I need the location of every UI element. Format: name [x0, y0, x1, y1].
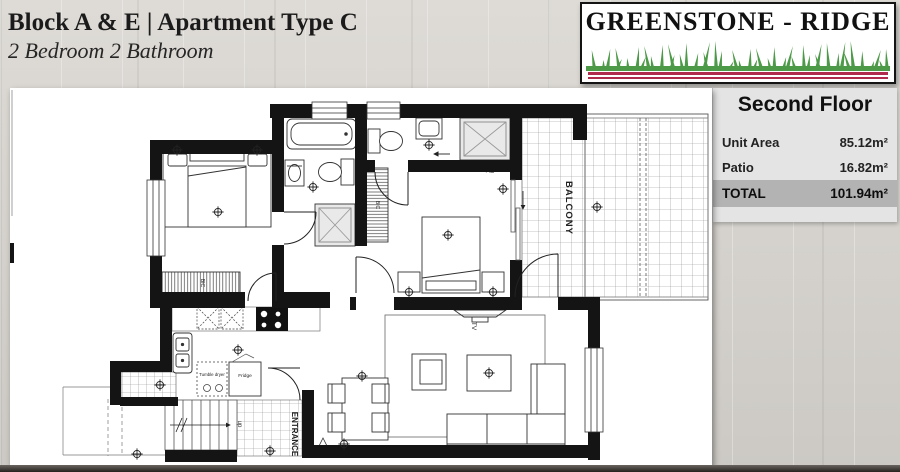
- living-room: [317, 310, 565, 452]
- kitchen-counter: [172, 307, 320, 331]
- greenstone-ridge-logo: GREENSTONE - RIDGE: [580, 2, 896, 84]
- floor-plan: Tumble dryer Fridge BIC: [10, 88, 712, 466]
- bathtub-icon: [287, 119, 356, 149]
- kitchen-sink-icon: [173, 333, 192, 373]
- entrance-label: ENTRANCE: [290, 412, 299, 457]
- floor-title: Second Floor: [713, 88, 897, 117]
- table-row: Patio 16.82m²: [713, 155, 897, 180]
- balcony-tiles: [522, 114, 708, 300]
- logo-red-line: [588, 77, 888, 79]
- floor-plan-drawing: Tumble dryer Fridge BIC: [10, 88, 712, 466]
- shower-icon: [460, 118, 510, 160]
- tumble-dryer-box: Tumble dryer: [197, 362, 227, 396]
- window: [312, 102, 347, 119]
- bic-label: BIC: [374, 201, 380, 210]
- bedroom2-bed-icon: [398, 217, 504, 293]
- shower-icon: [315, 204, 355, 246]
- toilet-icon: [319, 159, 355, 185]
- tv-label-living: TV: [470, 322, 477, 331]
- info-panel: Second Floor Unit Area 85.12m² Patio 16.…: [713, 88, 897, 222]
- toilet-icon: [368, 129, 403, 153]
- up-label: up: [236, 421, 242, 428]
- fridge-box: Fridge: [229, 354, 261, 396]
- yard-tiles: [121, 372, 176, 399]
- bedroom1-wardrobe: BIC: [162, 272, 240, 293]
- logo-text: GREENSTONE - RIDGE: [582, 7, 894, 37]
- stairs: [165, 400, 237, 450]
- row-label: Unit Area: [722, 130, 779, 155]
- window: [585, 348, 603, 432]
- kitchen: Tumble dryer Fridge: [172, 307, 320, 396]
- tumble-dryer-label: Tumble dryer: [199, 372, 225, 377]
- bathroom2: [368, 113, 510, 160]
- logo-red-line: [588, 72, 888, 75]
- row-value: 16.82m²: [840, 155, 888, 180]
- sheet-header: Block A & E | Apartment Type C 2 Bedroom…: [8, 8, 358, 64]
- basin-icon: [285, 160, 304, 186]
- sliding-door: [511, 180, 523, 260]
- page-subtitle: 2 Bedroom 2 Bathroom: [8, 38, 358, 64]
- grass-illustration: [586, 37, 890, 71]
- stove-icon: [256, 307, 288, 331]
- page-title: Block A & E | Apartment Type C: [8, 8, 358, 38]
- walls: [10, 104, 600, 462]
- tv-unit-icon: [454, 310, 506, 322]
- window: [147, 180, 165, 256]
- armchair-icon: [412, 354, 446, 390]
- area-table: Unit Area 85.12m² Patio 16.82m² TOTAL 10…: [713, 130, 897, 207]
- bedroom2: BIC TV: [365, 166, 508, 298]
- dining-set-icon: [328, 378, 389, 440]
- row-value: 85.12m²: [840, 130, 888, 155]
- window: [367, 102, 400, 119]
- fridge-label: Fridge: [238, 373, 252, 379]
- bic-label: BIC: [199, 279, 205, 288]
- bedroom2-wardrobe: BIC: [365, 168, 388, 242]
- bathroom1: [285, 119, 356, 246]
- bottom-shadow-strip: [0, 465, 900, 472]
- table-row: Unit Area 85.12m²: [713, 130, 897, 155]
- balcony-label: BALCONY: [563, 181, 574, 235]
- row-label: Patio: [722, 155, 754, 180]
- table-row-total: TOTAL 101.94m²: [713, 180, 897, 207]
- row-label: TOTAL: [722, 180, 766, 207]
- row-value: 101.94m²: [830, 180, 888, 207]
